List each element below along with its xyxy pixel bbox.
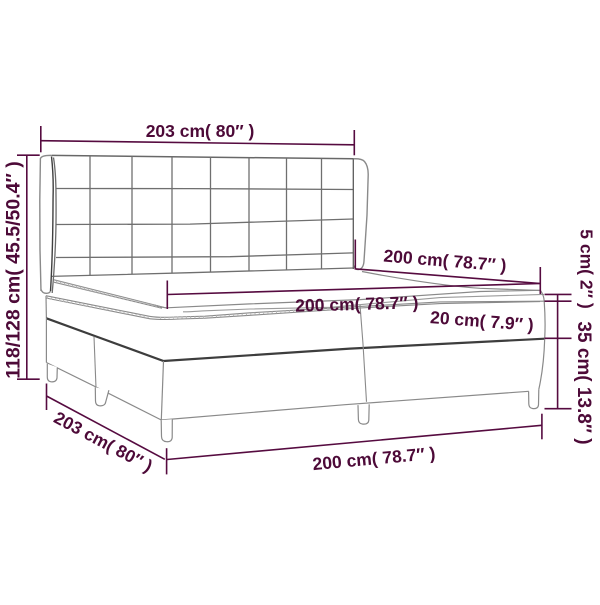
svg-text:5 cm( 2″ ): 5 cm( 2″ ) xyxy=(577,229,597,308)
svg-text:203 cm( 80″ ): 203 cm( 80″ ) xyxy=(146,121,255,141)
svg-text:200 cm( 78.7″ ): 200 cm( 78.7″ ) xyxy=(295,292,419,315)
svg-text:118/128 cm( 45.5/50.4″ ): 118/128 cm( 45.5/50.4″ ) xyxy=(3,161,25,379)
svg-text:35 cm( 13.8″ ): 35 cm( 13.8″ ) xyxy=(573,321,594,444)
